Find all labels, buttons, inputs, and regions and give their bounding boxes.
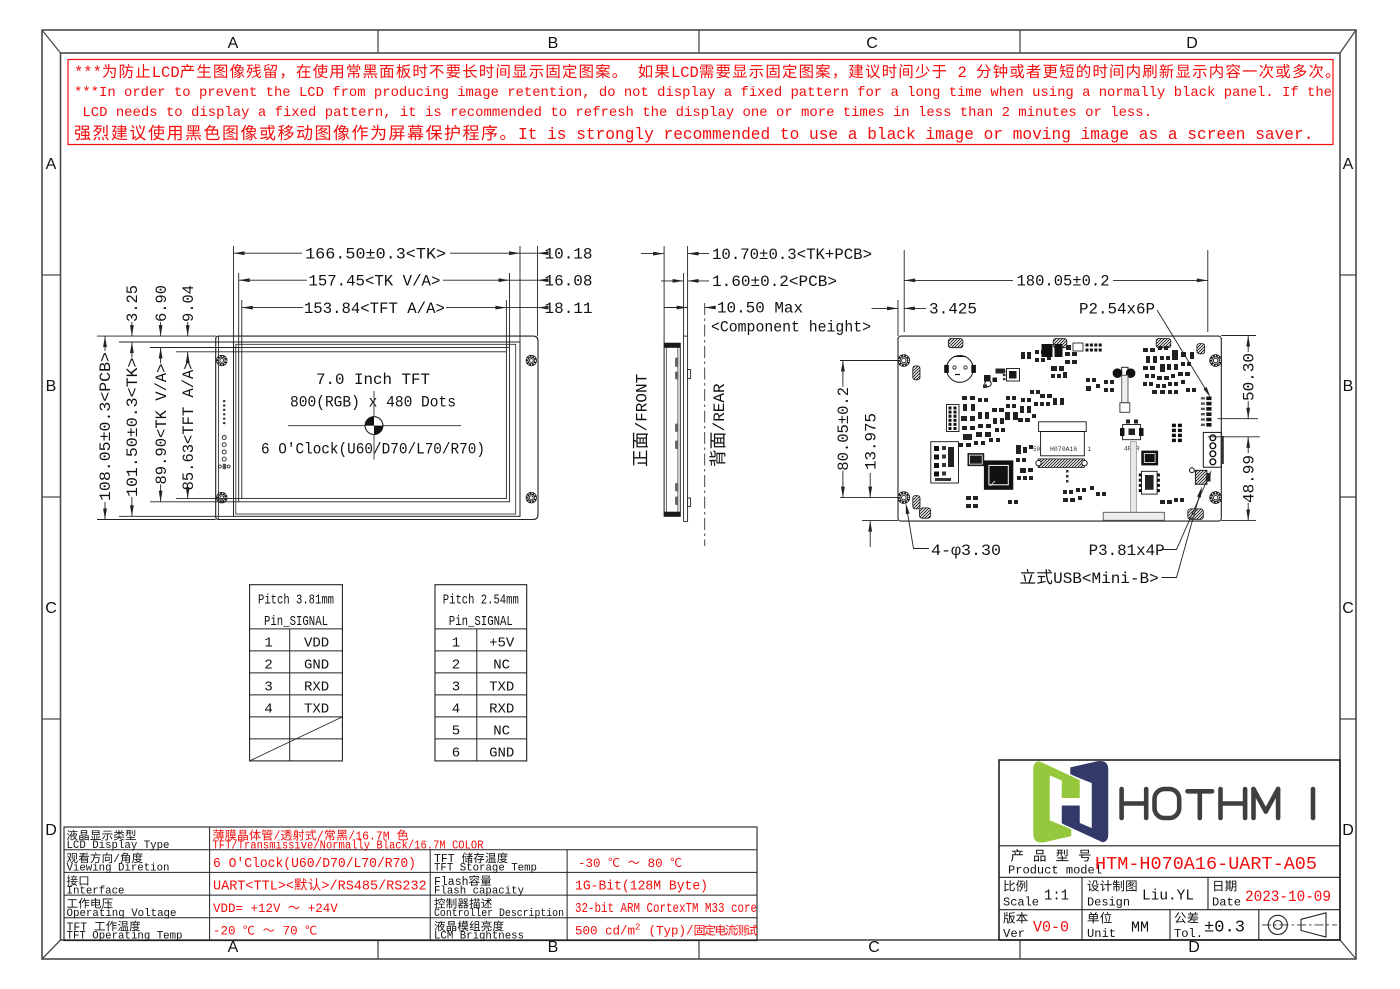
svg-text:Unit: Unit — [1087, 927, 1116, 941]
svg-text:101.50±0.3<TK>: 101.50±0.3<TK> — [124, 358, 142, 498]
svg-text:GND: GND — [304, 657, 329, 673]
svg-text:4: 4 — [264, 701, 272, 717]
svg-text:6.90: 6.90 — [153, 285, 171, 322]
svg-text:157.45<TK V/A>: 157.45<TK V/A> — [308, 272, 440, 290]
svg-text:TFT Storage Temp: TFT Storage Temp — [434, 863, 537, 875]
svg-text:/REAR: /REAR — [711, 383, 729, 431]
svg-text:500 cd/m: 500 cd/m — [575, 925, 635, 939]
svg-text:NC: NC — [493, 657, 510, 673]
svg-text:13.975: 13.975 — [862, 413, 880, 470]
svg-text:LCD needs to display a fixed p: LCD needs to display a fixed pattern, it… — [82, 105, 1152, 121]
svg-text:Pitch 3.81mm: Pitch 3.81mm — [258, 594, 334, 609]
svg-text:***In order to prevent the LCD: ***In order to prevent the LCD from prod… — [74, 85, 1332, 101]
svg-text:85.63<TFT A/A>: 85.63<TFT A/A> — [180, 360, 198, 490]
svg-text:A: A — [228, 939, 239, 956]
svg-text:B: B — [1343, 378, 1354, 395]
svg-text:LCD: LCD — [671, 64, 699, 82]
svg-text:2: 2 — [635, 923, 640, 933]
svg-text:A: A — [1343, 156, 1354, 173]
svg-text:MM: MM — [1131, 920, 1149, 937]
svg-text:***: *** — [74, 64, 102, 82]
svg-text:C: C — [45, 600, 57, 617]
svg-text:Liu.YL: Liu.YL — [1142, 888, 1194, 905]
svg-text:6 O'Clock(U60/D70/L70/R70): 6 O'Clock(U60/D70/L70/R70) — [213, 857, 416, 872]
svg-text:LCD Display Type: LCD Display Type — [67, 840, 170, 852]
svg-text:Design: Design — [1087, 896, 1130, 910]
svg-text:Date: Date — [1212, 896, 1241, 910]
svg-text:1.60±0.2<PCB>: 1.60±0.2<PCB> — [712, 273, 837, 291]
svg-text:±0.3: ±0.3 — [1204, 918, 1245, 937]
svg-text:18.11: 18.11 — [545, 300, 593, 318]
svg-text:10.18: 10.18 — [545, 245, 593, 263]
svg-text:166.50±0.3<TK>: 166.50±0.3<TK> — [305, 245, 446, 263]
svg-text:180.05±0.2: 180.05±0.2 — [1017, 273, 1110, 291]
svg-text:A: A — [46, 156, 57, 173]
svg-text:NC: NC — [493, 723, 510, 739]
svg-text:1G-Bit(128M Byte): 1G-Bit(128M Byte) — [575, 880, 708, 895]
svg-text:RXD: RXD — [489, 701, 514, 717]
svg-text:32-bit ARM CortexTM M33 core: 32-bit ARM CortexTM M33 core — [575, 902, 757, 917]
svg-text:2: 2 — [452, 657, 460, 673]
svg-text:P2.54x6P: P2.54x6P — [1079, 301, 1155, 319]
svg-text:D: D — [1186, 35, 1198, 52]
svg-text:Interface: Interface — [67, 885, 125, 897]
svg-text:80: 80 — [648, 857, 663, 871]
svg-text:2: 2 — [264, 657, 272, 673]
svg-text:10.70±0.3<TK+PCB>: 10.70±0.3<TK+PCB> — [712, 246, 872, 264]
svg-text:<Component height>: <Component height> — [711, 319, 871, 337]
svg-text:VDD: VDD — [304, 635, 329, 651]
svg-text:UART<TTL><: UART<TTL>< — [213, 880, 294, 895]
svg-text:/FRONT: /FRONT — [634, 374, 652, 432]
svg-text:TFT Operating Temp: TFT Operating Temp — [67, 931, 183, 943]
svg-text:TXD: TXD — [304, 701, 329, 717]
svg-text:LCD: LCD — [152, 64, 180, 82]
svg-text:Tol.: Tol. — [1174, 927, 1203, 941]
svg-text:Viewing Diretion: Viewing Diretion — [67, 863, 170, 875]
svg-text:1: 1 — [264, 635, 272, 651]
svg-text:B: B — [548, 35, 559, 52]
svg-text:-30: -30 — [578, 857, 601, 871]
svg-text:VDD= +12V: VDD= +12V — [213, 902, 281, 916]
svg-text:48.99: 48.99 — [1240, 455, 1258, 503]
svg-text:D: D — [1188, 939, 1200, 956]
svg-text:6 O'Clock(U60/D70/L70/R70): 6 O'Clock(U60/D70/L70/R70) — [261, 441, 485, 459]
svg-text:1: 1 — [1088, 446, 1092, 453]
svg-text:4-φ3.30: 4-φ3.30 — [931, 542, 1001, 560]
svg-text:153.84<TFT A/A>: 153.84<TFT A/A> — [304, 300, 445, 318]
svg-text:HTM-H070A16-UART-A05: HTM-H070A16-UART-A05 — [1095, 854, 1317, 875]
svg-text:C: C — [868, 939, 880, 956]
svg-text:3: 3 — [452, 679, 460, 695]
svg-text:>/RS485/RS232: >/RS485/RS232 — [321, 880, 426, 895]
svg-text:D: D — [1342, 822, 1354, 839]
svg-text:V0-0: V0-0 — [1033, 919, 1069, 937]
svg-text:3: 3 — [264, 679, 272, 695]
svg-text:LCM Brightness: LCM Brightness — [434, 931, 524, 943]
svg-text:3.25: 3.25 — [124, 285, 142, 322]
svg-text:C: C — [1342, 600, 1354, 617]
svg-text:3.425: 3.425 — [929, 301, 977, 319]
svg-text:800(RGB) x 480 Dots: 800(RGB) x 480 Dots — [290, 394, 456, 412]
svg-text:(Typ)/: (Typ)/ — [649, 925, 694, 939]
svg-text:10.50 Max: 10.50 Max — [717, 300, 803, 318]
svg-text:80.05±0.2: 80.05±0.2 — [835, 387, 853, 471]
svg-text:Operating Voltage: Operating Voltage — [67, 908, 177, 920]
svg-text:Pin_SIGNAL: Pin_SIGNAL — [449, 615, 513, 630]
svg-text:It is strongly recommended to: It is strongly recommended to use a blac… — [518, 125, 1313, 144]
svg-text:USB<Mini-B>: USB<Mini-B> — [1053, 570, 1159, 588]
svg-text:TXD: TXD — [489, 679, 514, 695]
svg-text:+5V: +5V — [489, 635, 515, 651]
svg-text:2: 2 — [957, 64, 966, 82]
svg-text:16.08: 16.08 — [545, 272, 593, 290]
svg-text:Pin_SIGNAL: Pin_SIGNAL — [264, 615, 328, 630]
svg-text:GND: GND — [489, 745, 514, 761]
svg-text:P3.81x4P: P3.81x4P — [1089, 542, 1165, 560]
svg-text:6: 6 — [452, 745, 460, 761]
svg-text:H070A16: H070A16 — [1050, 446, 1077, 453]
svg-text:9.04: 9.04 — [180, 285, 198, 322]
svg-text:D: D — [45, 822, 57, 839]
svg-text:Controller Description: Controller Description — [434, 908, 564, 920]
svg-text:Product model: Product model — [1008, 864, 1102, 878]
svg-text:1:1: 1:1 — [1044, 888, 1069, 905]
svg-text:4: 4 — [452, 701, 460, 717]
svg-text:C: C — [866, 35, 878, 52]
svg-text:B: B — [46, 378, 57, 395]
svg-text:Pitch 2.54mm: Pitch 2.54mm — [443, 594, 519, 609]
svg-text:TFT/Transmissive/Normally Blac: TFT/Transmissive/Normally Black/16.7M CO… — [213, 840, 484, 853]
svg-text:Flash capacity: Flash capacity — [434, 885, 524, 897]
svg-text:Scale: Scale — [1003, 896, 1039, 910]
svg-text:A: A — [228, 35, 239, 52]
svg-text:108.05±0.3<PCB>: 108.05±0.3<PCB> — [97, 352, 115, 501]
svg-text:2023-10-09: 2023-10-09 — [1245, 888, 1331, 906]
svg-text:1: 1 — [452, 635, 460, 651]
svg-text:RXD: RXD — [304, 679, 329, 695]
svg-text:Ver: Ver — [1003, 927, 1025, 941]
svg-text:7.0 Inch TFT: 7.0 Inch TFT — [316, 371, 430, 389]
svg-text:5: 5 — [452, 723, 460, 739]
svg-text:-20: -20 — [213, 925, 236, 939]
svg-text:70: 70 — [283, 925, 298, 939]
svg-text:+24V: +24V — [308, 902, 338, 916]
svg-text:B: B — [548, 939, 559, 956]
svg-text:50.30: 50.30 — [1240, 353, 1258, 401]
svg-text:50: 50 — [1033, 446, 1041, 453]
svg-text:89.90<TK V/A>: 89.90<TK V/A> — [153, 364, 171, 485]
